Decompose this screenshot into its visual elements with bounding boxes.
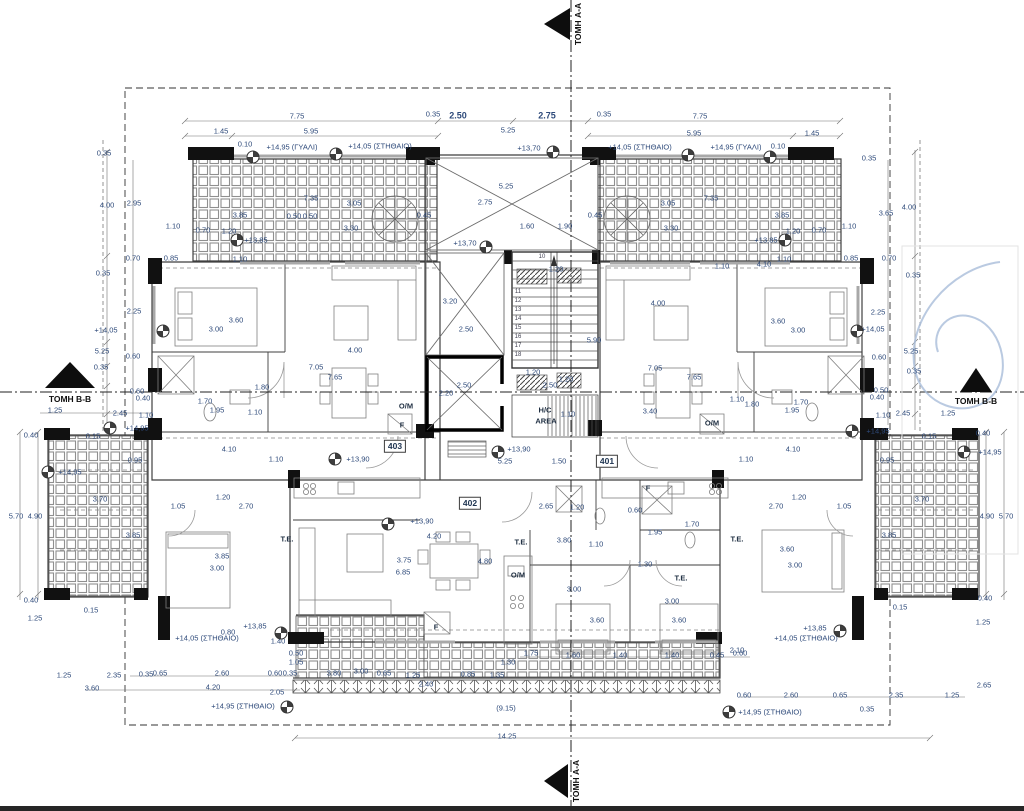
- dimension-label: 1.50: [552, 457, 567, 465]
- dimension-label: 0.95: [128, 456, 143, 464]
- dimension-label: 2.65: [539, 502, 554, 510]
- stair-step-number: 12: [515, 298, 522, 304]
- elevation-label: +14,95: [978, 448, 1001, 456]
- elevation-marker-icon: [330, 148, 343, 161]
- dimension-label: 5.25: [499, 182, 514, 190]
- elevation-label: +13,90: [410, 517, 433, 525]
- dimension-label: 1.20: [570, 503, 585, 511]
- dimension-label: 0.35: [426, 110, 441, 118]
- dimension-label: 0.35: [283, 669, 298, 677]
- dimension-label: 1.20: [526, 368, 541, 376]
- stair-step-number: 16: [515, 334, 522, 340]
- dimension-label: 3.80: [327, 669, 342, 677]
- elevation-marker-icon: [231, 234, 244, 247]
- elevation-label: +13,90: [507, 445, 530, 453]
- dimension-label: 3.65: [879, 209, 894, 217]
- dimension-label: 1.25: [57, 671, 72, 679]
- elevation-marker-icon: [329, 453, 342, 466]
- dimension-label: 3.70: [915, 495, 930, 503]
- dimension-label: 3.85: [215, 552, 230, 560]
- dimension-label: 6.85: [396, 568, 411, 576]
- dimension-label: 2.60: [215, 669, 230, 677]
- dimension-label: 4.00: [348, 346, 363, 354]
- dimension-label: (9.15): [496, 704, 516, 712]
- dimension-label: 2.60: [784, 691, 799, 699]
- dimension-label: 2.35: [107, 671, 122, 679]
- elevation-label: +14,05 (ΣΤΗΘΑΙΟ): [175, 634, 238, 642]
- stair-step-number: 10: [539, 254, 546, 260]
- dimension-label: 3.60: [590, 616, 605, 624]
- stair-step-number: 18: [515, 352, 522, 358]
- dimension-label: 1.25: [28, 614, 43, 622]
- dimension-label: 1.95: [785, 406, 800, 414]
- dimension-label: 0.50: [289, 649, 304, 657]
- dimension-label: 1.70: [198, 397, 213, 405]
- elevation-marker-icon: [958, 446, 971, 459]
- dimension-label: 5.25: [95, 347, 110, 355]
- dimension-label: 2.50: [543, 381, 558, 389]
- dimension-label: 3.30: [664, 224, 679, 232]
- dimension-label: 1.25: [406, 671, 421, 679]
- dimension-label: 3.00: [791, 326, 806, 334]
- dimension-label: 3.20: [443, 297, 458, 305]
- dimension-label: 1.20: [549, 265, 564, 273]
- dimension-label: 3.80: [557, 536, 572, 544]
- dimension-label: 0.45: [710, 651, 725, 659]
- stair-step-number: 14: [515, 316, 522, 322]
- dimension-label: 0.70: [882, 254, 897, 262]
- dimension-label: 1.25: [941, 409, 956, 417]
- dimension-label: 7.65: [328, 373, 343, 381]
- dimension-label: 3.00: [210, 564, 225, 572]
- elevation-label: +13,85: [803, 624, 826, 632]
- dimension-label: 3.85: [126, 531, 141, 539]
- dimension-label: 0.40: [136, 394, 151, 402]
- room-label: O/M: [511, 571, 525, 579]
- dimension-label: 1.10: [248, 408, 263, 416]
- elevation-marker-icon: [281, 701, 294, 714]
- elevation-marker-icon: [42, 466, 55, 479]
- dimension-label: 7.05: [648, 364, 663, 372]
- dimension-label: 1.10: [739, 455, 754, 463]
- elevation-marker-icon: [723, 706, 736, 719]
- apartment-number: 403: [384, 440, 406, 453]
- dimension-label: 1.10: [589, 540, 604, 548]
- dimension-label: 0.40: [24, 431, 39, 439]
- room-label: F: [400, 421, 405, 429]
- dimension-label: 0.15: [893, 603, 908, 611]
- elevation-label: +14,05 (ΣΤΗΘΑΙΟ): [774, 634, 837, 642]
- dimension-label: 3.30: [344, 224, 359, 232]
- dimension-label: 0.40: [24, 596, 39, 604]
- dimension-label: 3.85: [775, 211, 790, 219]
- dimension-label: 4.00: [902, 203, 917, 211]
- dimension-label: 2.75: [538, 112, 556, 121]
- dimension-label: 0.45: [417, 211, 432, 219]
- dimension-label: 1.40: [665, 651, 680, 659]
- dimension-label: 0.65: [377, 669, 392, 677]
- dimension-label: 7.05: [309, 363, 324, 371]
- elevation-marker-icon: [157, 325, 170, 338]
- dimension-label: 1.90: [558, 222, 573, 230]
- elevation-marker-icon: [382, 518, 395, 531]
- elevation-label: +14,95: [866, 427, 889, 435]
- dimension-label: 4.00: [100, 201, 115, 209]
- dimension-label: 2.45: [113, 409, 128, 417]
- section-label-top: ΤΟΜΗ A-A: [573, 3, 583, 45]
- dimension-label: 3.60: [780, 545, 795, 553]
- stair-step-number: 13: [515, 307, 522, 313]
- elevation-marker-icon: [480, 241, 493, 254]
- elevation-label: +14,05 (ΣΤΗΘΑΙΟ): [348, 142, 411, 150]
- dimension-label: 2.50: [459, 325, 474, 333]
- dimension-label: 5.95: [687, 129, 702, 137]
- dimension-label: 0.65: [153, 669, 168, 677]
- dimension-label: 0.35: [907, 367, 922, 375]
- elevation-label: +13,85: [754, 236, 777, 244]
- room-label: T.E.: [281, 535, 294, 543]
- elevation-marker-icon: [492, 446, 505, 459]
- dimension-label: 1.70: [685, 520, 700, 528]
- dimension-label: 1.35: [490, 671, 505, 679]
- elevation-label: +14,95 (ΣΤΗΘΑΙΟ): [738, 708, 801, 716]
- dimension-label: 4.20: [427, 532, 442, 540]
- dimension-label: 1.45: [805, 129, 820, 137]
- dimension-label: 4.10: [757, 260, 772, 268]
- dimension-label: 1.60: [520, 222, 535, 230]
- section-label-left: ΤΟΜΗ B-B: [49, 394, 91, 404]
- dimension-label: 1.60: [566, 651, 581, 659]
- dimension-label: 1.05: [289, 658, 304, 666]
- dimension-label: 0.15: [86, 432, 101, 440]
- dimension-label: 4.00: [651, 299, 666, 307]
- dimension-label: 0.35: [860, 705, 875, 713]
- floor-plan-canvas: 7.751.455.950.100.352.502.750.355.257.75…: [0, 0, 1024, 811]
- dimension-label: 0.65: [833, 691, 848, 699]
- dimension-label: 7.75: [290, 112, 305, 120]
- dimension-label: 1.20: [559, 375, 574, 383]
- dimension-label: 7.35: [704, 194, 719, 202]
- dimension-label: 3.85: [233, 211, 248, 219]
- dimension-label: 0.45: [588, 211, 603, 219]
- dimension-label: 3.00: [788, 561, 803, 569]
- dimension-label: 0.50: [287, 212, 302, 220]
- dimension-label: 4.90: [28, 512, 43, 520]
- elevation-label: +14,05: [94, 326, 117, 334]
- dimension-label: 1.05: [837, 502, 852, 510]
- dimension-label: 0.40: [976, 429, 991, 437]
- elevation-label: +14,05: [861, 325, 884, 333]
- dimension-label: 3.05: [661, 199, 676, 207]
- elevation-label: +13,90: [346, 455, 369, 463]
- dimension-label: 2.50: [449, 112, 467, 121]
- elevation-marker-icon: [275, 627, 288, 640]
- elevation-label: +13,85: [243, 622, 266, 630]
- elevation-marker-icon: [682, 149, 695, 162]
- apartment-number: 401: [596, 455, 618, 468]
- dimension-label: 2.35: [889, 691, 904, 699]
- dimension-label: 1.95: [210, 406, 225, 414]
- stair-step-number: 15: [515, 325, 522, 331]
- dimension-label: 0.70: [812, 226, 827, 234]
- dimension-label: 7.75: [693, 112, 708, 120]
- dimension-label: 5.25: [904, 347, 919, 355]
- dimension-label: 4.80: [478, 557, 493, 565]
- dimension-label: 1.10: [842, 222, 857, 230]
- dimension-label: 0.10: [238, 140, 253, 148]
- dimension-label: 0.85: [164, 254, 179, 262]
- dimension-label: 1.45: [214, 127, 229, 135]
- dimension-label: 1.20: [216, 493, 231, 501]
- dimension-label: 3.60: [672, 616, 687, 624]
- dimension-label: 4.20: [206, 683, 221, 691]
- room-label: O/M: [399, 402, 413, 410]
- dimension-label: 0.50: [303, 212, 318, 220]
- elevation-label: +13,70: [517, 144, 540, 152]
- dimension-label: 1.05: [171, 502, 186, 510]
- dimension-label: 1.10: [166, 222, 181, 230]
- dimension-label: 5.90: [587, 336, 602, 344]
- dimension-label: 3.60: [229, 316, 244, 324]
- dimension-label: 1.80: [255, 383, 270, 391]
- dimension-label: 3.00: [209, 325, 224, 333]
- elevation-label: +14,95: [58, 468, 81, 476]
- dimension-label: 5.70: [9, 512, 24, 520]
- dimension-label: 1.95: [648, 528, 663, 536]
- dimension-label: 5.70: [999, 512, 1014, 520]
- dimension-label: 0.40: [870, 393, 885, 401]
- dimension-label: 3.60: [85, 684, 100, 692]
- dimension-label: 1.10: [561, 410, 576, 418]
- dimension-label: 1.10: [876, 411, 891, 419]
- dimension-label: 4.10: [786, 445, 801, 453]
- dimension-label: 0.60: [872, 353, 887, 361]
- dimension-label: 1.10: [269, 455, 284, 463]
- dimension-label: 1.10: [233, 255, 248, 263]
- dimension-label: 2.95: [127, 199, 142, 207]
- dimension-label: 0.35: [862, 154, 877, 162]
- room-label: F: [646, 484, 651, 492]
- stair-step-number: 17: [515, 343, 522, 349]
- room-label: T.E.: [675, 574, 688, 582]
- elevation-marker-icon: [834, 625, 847, 638]
- room-label: F: [434, 623, 439, 631]
- dimension-label: 2.25: [871, 308, 886, 316]
- dimension-label: 2.45: [896, 409, 911, 417]
- dimension-label: 3.00: [567, 585, 582, 593]
- section-label-bottom: ΤΟΜΗ A-A: [571, 760, 581, 802]
- dimension-label: 0.60: [126, 352, 141, 360]
- elevation-marker-icon: [851, 325, 864, 338]
- dimension-label: 0.35: [94, 363, 109, 371]
- dimension-label: 4.90: [980, 512, 995, 520]
- dimension-label: 1.10: [715, 262, 730, 270]
- dimension-label: 4.10: [222, 445, 237, 453]
- elevation-label: +14,95: [125, 424, 148, 432]
- dimension-label: 1.25: [48, 406, 63, 414]
- room-label: AREA: [535, 417, 556, 425]
- dimension-label: 1.25: [976, 618, 991, 626]
- dimension-label: 7.35: [304, 194, 319, 202]
- room-label: T.E.: [731, 535, 744, 543]
- dimension-label: 0.40: [978, 594, 993, 602]
- dimension-label: 2.05: [270, 688, 285, 696]
- dimension-label: 3.00: [354, 667, 369, 675]
- dimension-label: 1.10: [139, 411, 154, 419]
- dimension-label: 5.25: [501, 126, 516, 134]
- elevation-label: +14,95 (ΣΤΗΘΑΙΟ): [211, 702, 274, 710]
- dimension-label: 0.60: [268, 669, 283, 677]
- room-label: H/C: [539, 406, 552, 414]
- elevation-marker-icon: [846, 425, 859, 438]
- dimension-label: 2.70: [769, 502, 784, 510]
- dimension-label: 1.25: [945, 691, 960, 699]
- dimension-label: 0.60: [737, 691, 752, 699]
- dimension-label: 0.35: [597, 110, 612, 118]
- dimension-label: 3.05: [347, 199, 362, 207]
- dimension-label: 1.80: [745, 400, 760, 408]
- elevation-label: +14,95 (ΓΥΑΛΙ): [267, 143, 318, 151]
- dimension-label: 3.00: [665, 597, 680, 605]
- dimension-label: 0.35: [96, 269, 111, 277]
- dimension-label: 1.40: [613, 651, 628, 659]
- dimension-label: 0.85: [844, 254, 859, 262]
- dimension-label: 0.70: [126, 254, 141, 262]
- elevation-label: +13,85: [244, 236, 267, 244]
- dimension-label: 3.60: [771, 317, 786, 325]
- elevation-marker-icon: [779, 234, 792, 247]
- dimension-label: 0.60: [733, 649, 748, 657]
- dimension-label: 0.60: [628, 506, 643, 514]
- dimension-label: 3.75: [397, 556, 412, 564]
- elevation-marker-icon: [764, 151, 777, 164]
- dimension-label: 3.70: [93, 495, 108, 503]
- elevation-label: +14,95 (ΓΥΑΛΙ): [711, 143, 762, 151]
- section-label-right: ΤΟΜΗ B-B: [955, 396, 997, 406]
- dimension-label: 2.40: [419, 680, 434, 688]
- dimension-label: 2.75: [478, 198, 493, 206]
- dimension-label: 1.10: [777, 255, 792, 263]
- dimension-label: 2.20: [439, 389, 454, 397]
- dimension-label: 1.30: [638, 560, 653, 568]
- apartment-number: 402: [459, 497, 481, 510]
- dimension-label: 1.75: [524, 649, 539, 657]
- annotation-layer: 7.751.455.950.100.352.502.750.355.257.75…: [0, 0, 1024, 811]
- dimension-label: 0.85: [461, 670, 476, 678]
- dimension-label: 0.95: [880, 456, 895, 464]
- elevation-marker-icon: [104, 422, 117, 435]
- elevation-marker-icon: [247, 151, 260, 164]
- dimension-label: 2.25: [127, 307, 142, 315]
- room-label: T.E.: [515, 538, 528, 546]
- dimension-label: 7.65: [687, 373, 702, 381]
- stair-step-number: 11: [515, 289, 521, 295]
- dimension-label: 0.35: [97, 149, 112, 157]
- dimension-label: 0.35: [906, 271, 921, 279]
- dimension-label: 0.70: [196, 226, 211, 234]
- dimension-label: 2.50: [457, 381, 472, 389]
- elevation-marker-icon: [547, 146, 560, 159]
- dimension-label: 0.10: [771, 142, 786, 150]
- dimension-label: 3.40: [643, 407, 658, 415]
- dimension-label: 1.30: [501, 658, 516, 666]
- elevation-label: +14,05 (ΣΤΗΘΑΙΟ): [608, 143, 671, 151]
- room-label: O/M: [705, 419, 719, 427]
- dimension-label: 2.65: [977, 681, 992, 689]
- dimension-label: 0.15: [922, 432, 937, 440]
- dimension-label: 3.85: [882, 531, 897, 539]
- elevation-label: +13,70: [453, 239, 476, 247]
- dimension-label: 1.20: [792, 493, 807, 501]
- dimension-label: 5.95: [304, 127, 319, 135]
- dimension-label: 2.70: [239, 502, 254, 510]
- dimension-label: 0.35: [139, 670, 154, 678]
- dimension-label: 14.25: [498, 732, 517, 740]
- dimension-label: 1.10: [730, 395, 745, 403]
- dimension-label: 5.25: [498, 457, 513, 465]
- dimension-label: 0.15: [84, 606, 99, 614]
